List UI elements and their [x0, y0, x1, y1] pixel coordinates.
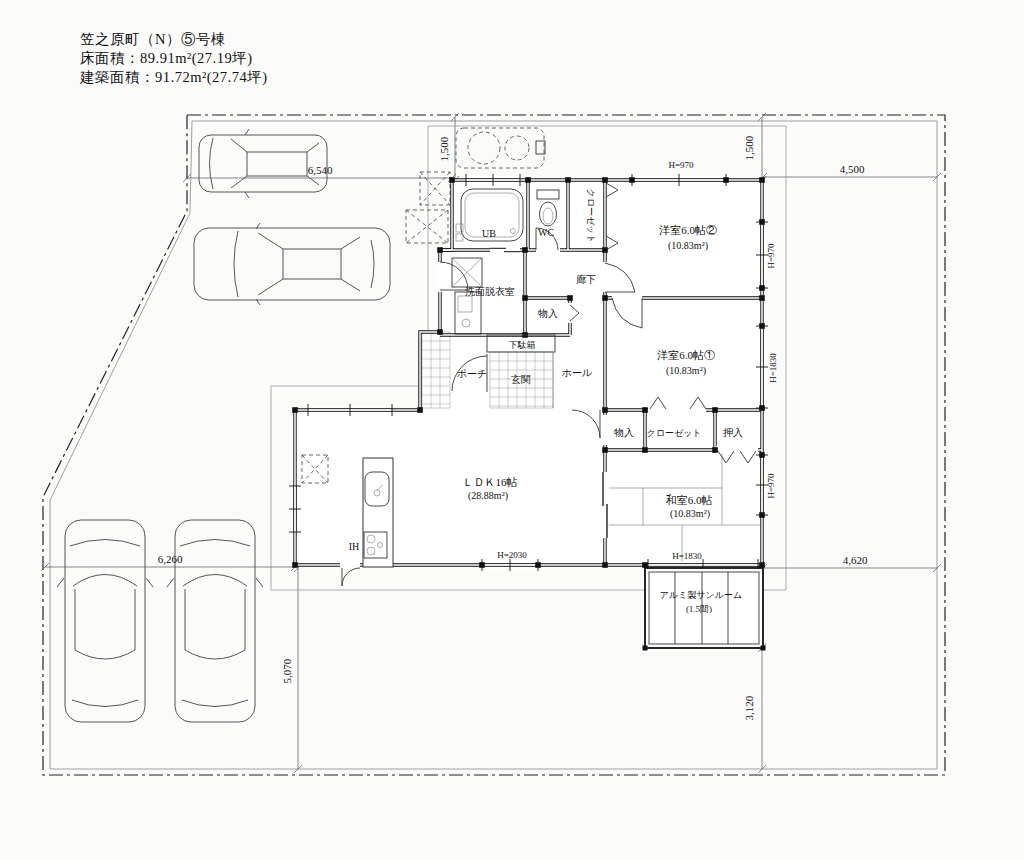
car-2 [194, 223, 390, 305]
label-porch: ポーチ [457, 368, 487, 379]
kitchen-counter [363, 458, 393, 567]
label-entrance: 玄関 [511, 374, 531, 385]
dim-top-right: 4,500 [840, 163, 865, 175]
label-closet-south: クローゼット [646, 428, 701, 438]
heat-pump-icon [505, 136, 529, 160]
label-western2-area: (10.83m²) [668, 240, 708, 252]
label-oshiire: 押入 [723, 427, 743, 438]
dim-right-lower: 3,120 [743, 695, 755, 720]
win-label-west2-top: H=970 [668, 160, 694, 170]
label-corridor: 廊下 [576, 274, 596, 285]
dim-top-left: 6,540 [308, 164, 333, 176]
label-japanese-area: (10.83m²) [670, 508, 710, 520]
label-western2: 洋室6.0帖② [658, 224, 717, 236]
dim-bottom-right: 4,620 [843, 554, 868, 566]
label-ih: IH [349, 541, 360, 552]
floor-plan-page: 笠之原町（N）⑤号棟 床面積：89.91m²(27.19坪) 建築面積：91.7… [0, 0, 1024, 860]
label-closet-north: クローゼット [586, 188, 596, 243]
dim-bottom-left: 6,260 [158, 553, 183, 565]
label-western1: 洋室6.0帖① [656, 349, 715, 361]
label-storage-south: 物入 [614, 427, 634, 438]
car-3 [57, 520, 153, 722]
label-storage-north: 物入 [538, 308, 558, 319]
door-kitchen-back [342, 568, 360, 586]
water-heater-tank-icon [468, 132, 500, 164]
label-sunroom: アルミ製サンルーム [660, 590, 742, 600]
dim-left-lower: 5,070 [281, 658, 293, 683]
dim-offset-right: 1,500 [743, 135, 755, 160]
label-shoe-cabinet: 下駄箱 [509, 340, 536, 350]
label-washroom: 洗面脱衣室 [465, 286, 515, 297]
floor-plan-drawing: UB WC クローゼット 洋室6.0帖② (10.83m²) 洗面脱衣室 廊下 … [0, 0, 1024, 860]
car-4 [167, 520, 263, 722]
label-ldk-area: (28.88m²) [468, 490, 508, 502]
label-wc: WC [538, 227, 554, 238]
label-ub: UB [482, 228, 496, 239]
win-label-west1-right: H=1830 [768, 353, 778, 383]
label-japanese: 和室6.0帖 [666, 494, 713, 506]
win-label-west2-right: H=970 [766, 243, 776, 269]
label-hall: ホール [562, 367, 593, 378]
label-sunroom-size: (1.5間) [686, 604, 712, 614]
win-label-japanese-bottom: H=1830 [672, 551, 702, 561]
win-label-ldk-bottom: H=2030 [497, 550, 527, 560]
label-western1-area: (10.83m²) [666, 365, 706, 377]
dim-offset-left: 1,500 [438, 136, 450, 161]
label-ldk: ＬＤＫ16帖 [463, 476, 518, 488]
win-label-japanese-right: H=970 [766, 473, 776, 499]
